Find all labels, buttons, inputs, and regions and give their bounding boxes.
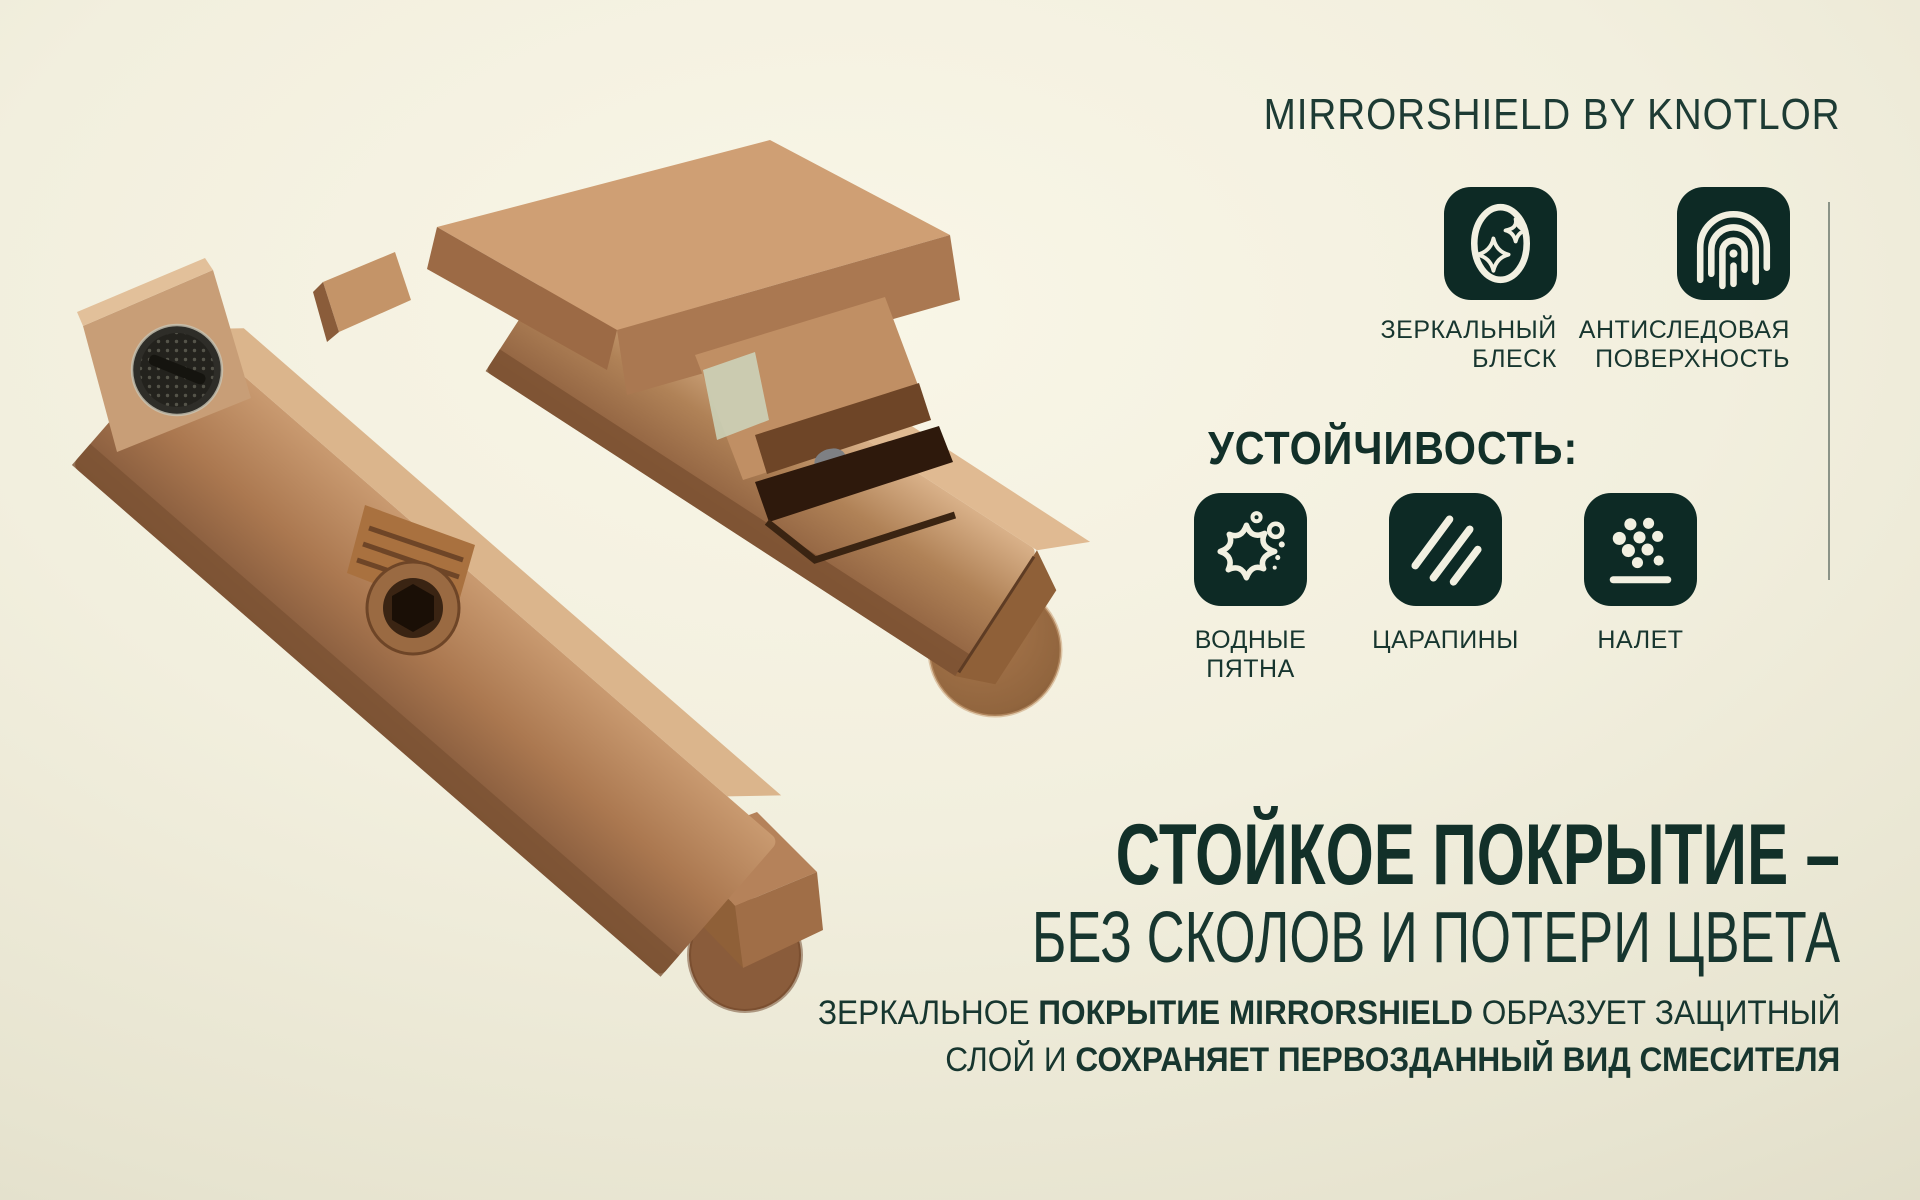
claim-body-line-2: СЛОЙ И СОХРАНЯЕТ ПЕРВОЗДАННЫЙ ВИД СМЕСИТ… xyxy=(818,1037,1840,1084)
resistance-label: НАЛЕТ xyxy=(1597,626,1683,655)
scratches-icon xyxy=(1389,493,1502,606)
vertical-divider xyxy=(1828,202,1830,580)
claim-heading: СТОЙКОЕ ПОКРЫТИЕ – xyxy=(1116,812,1840,898)
fingerprint-icon xyxy=(1677,187,1790,300)
resistance-row: ВОДНЫЕ ПЯТНА ЦАРАПИНЫ xyxy=(1194,493,1697,684)
benefit-anti-fingerprint: АНТИСЛЕДОВАЯ ПОВЕРХНОСТЬ xyxy=(1579,187,1790,374)
resistance-deposit: НАЛЕТ xyxy=(1584,493,1697,684)
resistance-heading: УСТОЙЧИВОСТЬ: xyxy=(1208,421,1578,475)
resistance-label: ЦАРАПИНЫ xyxy=(1372,626,1519,655)
resistance-label: ВОДНЫЕ ПЯТНА xyxy=(1195,626,1307,684)
mirror-shine-icon xyxy=(1444,187,1557,300)
benefit-label: ЗЕРКАЛЬНЫЙ БЛЕСК xyxy=(1381,316,1557,374)
brand-title: MIRRORSHIELD BY KNOTLOR xyxy=(1263,90,1840,140)
deposit-icon xyxy=(1584,493,1697,606)
resistance-scratches: ЦАРАПИНЫ xyxy=(1389,493,1502,684)
benefit-label: АНТИСЛЕДОВАЯ ПОВЕРХНОСТЬ xyxy=(1579,316,1790,374)
claim-body: ЗЕРКАЛЬНОЕ ПОКРЫТИЕ MIRRORSHIELD ОБРАЗУЕ… xyxy=(741,990,1840,1084)
claim-body-line-1: ЗЕРКАЛЬНОЕ ПОКРЫТИЕ MIRRORSHIELD ОБРАЗУЕ… xyxy=(818,990,1840,1037)
claim-subheading: БЕЗ СКОЛОВ И ПОТЕРИ ЦВЕТА xyxy=(1032,902,1840,974)
water-stain-icon xyxy=(1194,493,1307,606)
resistance-water-stains: ВОДНЫЕ ПЯТНА xyxy=(1194,493,1307,684)
benefit-mirror-shine: ЗЕРКАЛЬНЫЙ БЛЕСК xyxy=(1381,187,1557,374)
benefits-row: ЗЕРКАЛЬНЫЙ БЛЕСК АНТИСЛЕДОВАЯ ПОВЕРХНОСТ… xyxy=(1381,187,1790,374)
product-infographic: MIRRORSHIELD BY KNOTLOR ЗЕРКАЛЬНЫЙ БЛЕСК xyxy=(0,0,1920,1200)
